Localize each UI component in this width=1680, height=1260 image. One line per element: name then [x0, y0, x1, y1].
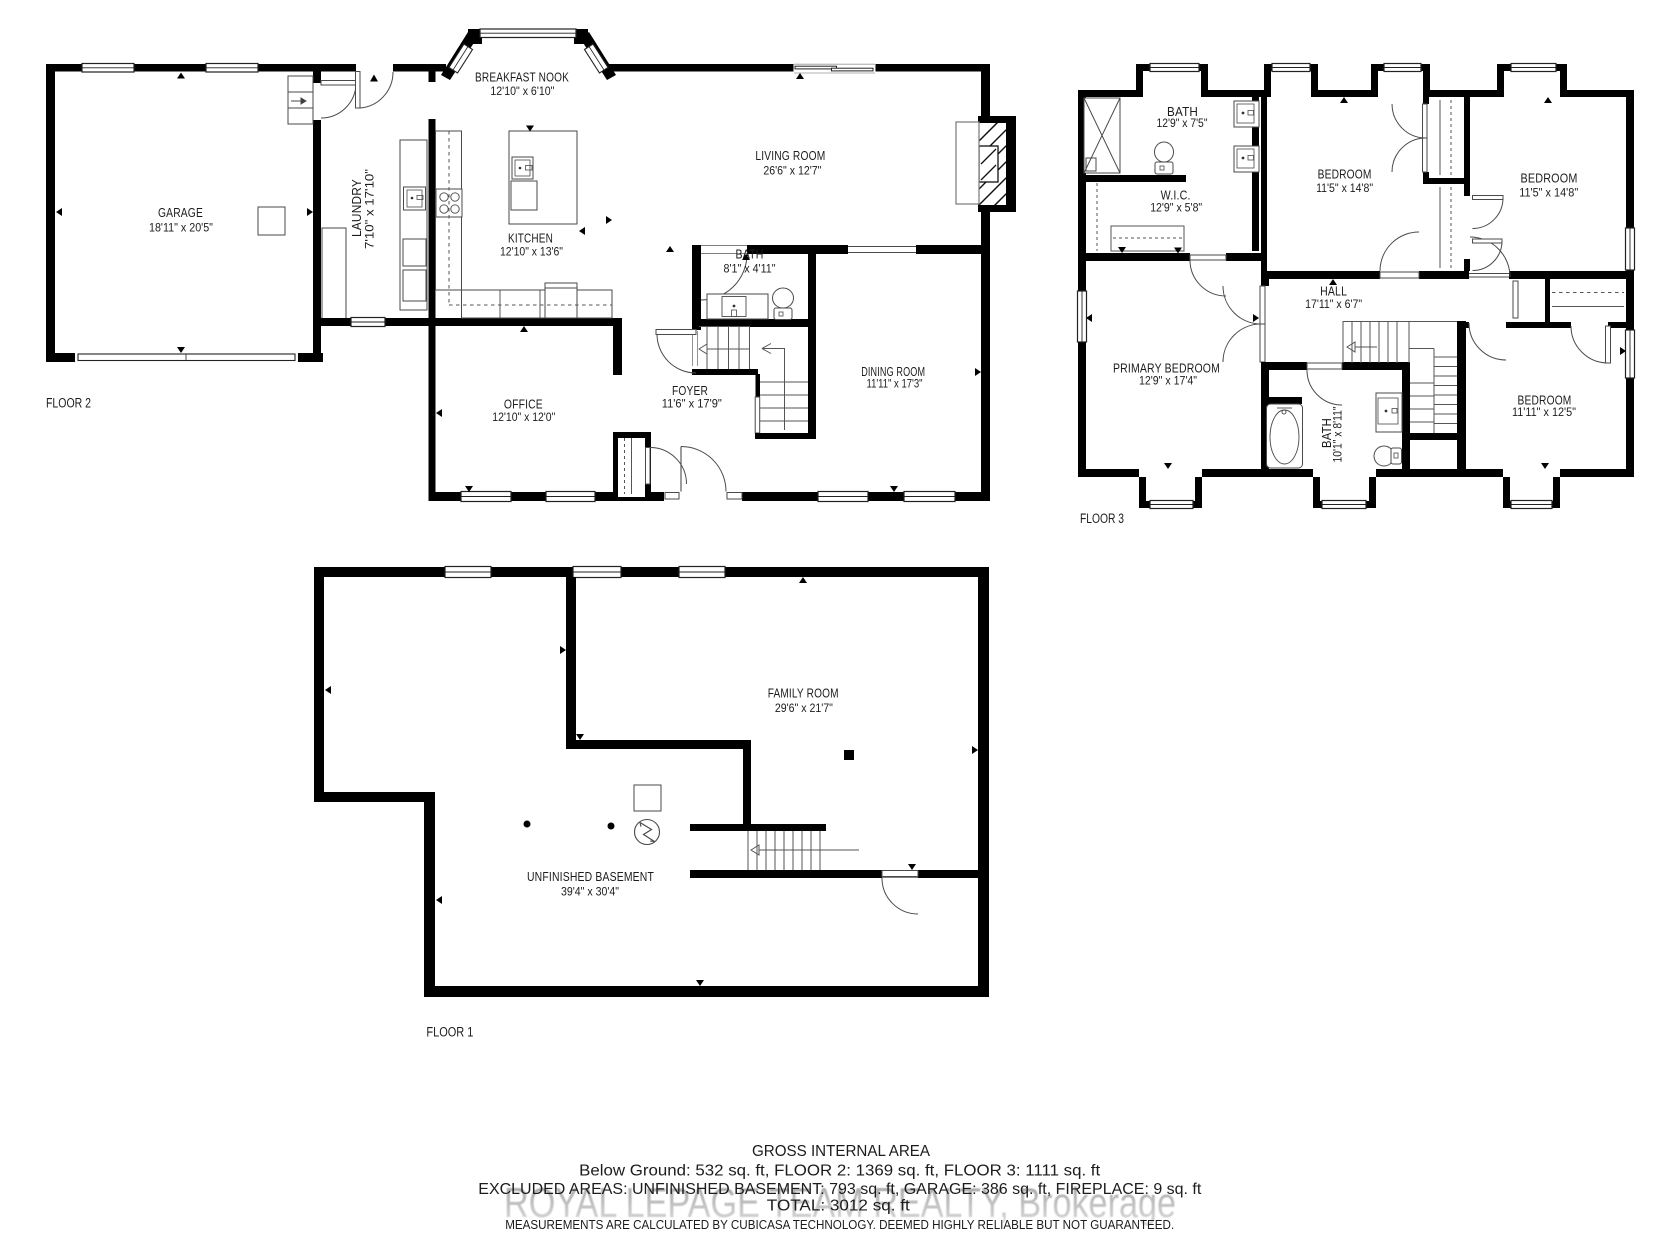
svg-text:KITCHEN: KITCHEN	[508, 232, 553, 246]
svg-text:39'4" x 30'4": 39'4" x 30'4"	[561, 887, 619, 899]
svg-text:11'5" x 14'8": 11'5" x 14'8"	[1316, 183, 1373, 195]
svg-text:10'1" x 8'11": 10'1" x 8'11"	[1333, 407, 1345, 463]
svg-text:PRIMARY BEDROOM: PRIMARY BEDROOM	[1113, 362, 1220, 376]
svg-text:12'10" x 6'10": 12'10" x 6'10"	[490, 86, 554, 98]
svg-text:BEDROOM: BEDROOM	[1318, 168, 1372, 182]
svg-text:LIVING ROOM: LIVING ROOM	[755, 149, 825, 163]
svg-text:HALL: HALL	[1320, 285, 1347, 299]
svg-text:12'10" x 12'0": 12'10" x 12'0"	[492, 412, 555, 424]
svg-text:FAMILY ROOM: FAMILY ROOM	[768, 687, 839, 701]
svg-text:DINING ROOM: DINING ROOM	[861, 365, 925, 379]
svg-text:11'5" x 14'8": 11'5" x 14'8"	[1519, 188, 1578, 200]
svg-text:BREAKFAST NOOK: BREAKFAST NOOK	[475, 71, 569, 85]
svg-text:W.I.C.: W.I.C.	[1161, 189, 1191, 203]
svg-text:8'1" x 4'11": 8'1" x 4'11"	[724, 264, 776, 276]
svg-text:12'9" x 17'4": 12'9" x 17'4"	[1139, 376, 1197, 388]
svg-text:11'11" x 12'5": 11'11" x 12'5"	[1512, 407, 1576, 419]
svg-text:GROSS INTERNAL AREA: GROSS INTERNAL AREA	[752, 1143, 931, 1160]
svg-text:29'6" x 21'7": 29'6" x 21'7"	[775, 703, 833, 715]
svg-text:FLOOR 2: FLOOR 2	[46, 396, 91, 411]
svg-text:12'9" x 5'8": 12'9" x 5'8"	[1150, 203, 1202, 215]
svg-text:TOTAL: 3012 sq. ft: TOTAL: 3012 sq. ft	[767, 1198, 911, 1215]
svg-text:BEDROOM: BEDROOM	[1521, 172, 1578, 186]
svg-text:OFFICE: OFFICE	[504, 398, 543, 412]
svg-text:UNFINISHED BASEMENT: UNFINISHED BASEMENT	[527, 870, 654, 884]
svg-text:11'6" x 17'9": 11'6" x 17'9"	[662, 398, 722, 410]
svg-text:MEASUREMENTS ARE CALCULATED BY: MEASUREMENTS ARE CALCULATED BY CUBICASA …	[505, 1218, 1174, 1232]
svg-text:7'10" x 17'10": 7'10" x 17'10"	[365, 169, 377, 249]
svg-text:FOYER: FOYER	[672, 384, 708, 398]
svg-text:12'9" x 7'5": 12'9" x 7'5"	[1157, 118, 1208, 130]
svg-text:17'11" x 6'7": 17'11" x 6'7"	[1305, 299, 1362, 311]
svg-text:18'11" x 20'5": 18'11" x 20'5"	[149, 223, 213, 235]
svg-text:12'10" x 13'6": 12'10" x 13'6"	[500, 247, 563, 259]
svg-text:Below Ground: 532 sq. ft, FLOO: Below Ground: 532 sq. ft, FLOOR 2: 1369 …	[579, 1163, 1101, 1180]
svg-text:11'11" x 17'3": 11'11" x 17'3"	[867, 378, 923, 390]
svg-text:GARAGE: GARAGE	[158, 206, 203, 220]
svg-text:FLOOR 1: FLOOR 1	[426, 1025, 473, 1040]
svg-text:26'6" x 12'7": 26'6" x 12'7"	[763, 166, 821, 178]
svg-text:EXCLUDED AREAS: UNFINISHED BAS: EXCLUDED AREAS: UNFINISHED BASEMENT: 793…	[478, 1181, 1202, 1198]
svg-text:LAUNDRY: LAUNDRY	[350, 179, 364, 237]
svg-text:BEDROOM: BEDROOM	[1518, 394, 1572, 408]
svg-text:BATH: BATH	[1167, 105, 1198, 119]
svg-text:FLOOR 3: FLOOR 3	[1080, 511, 1124, 526]
